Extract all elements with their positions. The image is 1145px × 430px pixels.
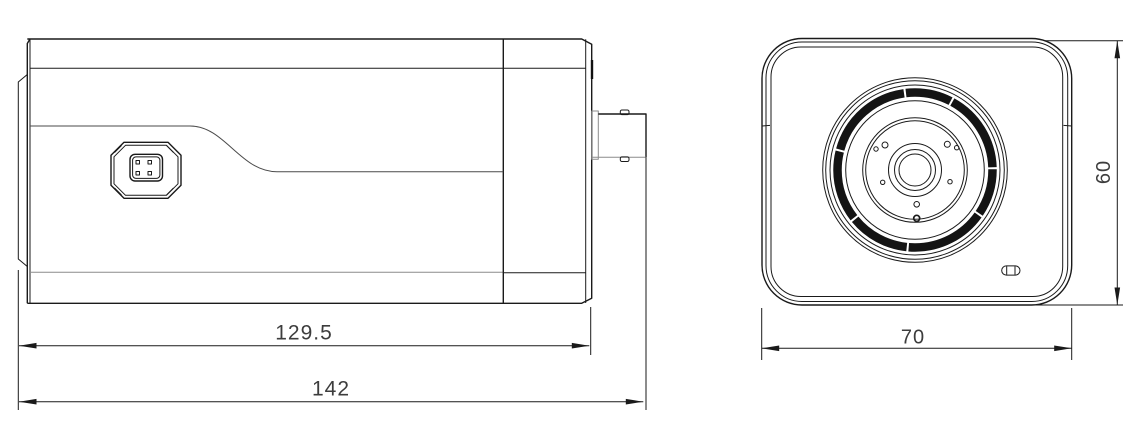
dim-body-length-label: 129.5 — [275, 322, 333, 345]
lens-ring-2 — [895, 150, 936, 191]
bnc-body — [598, 114, 646, 157]
dim-total-length: 142 — [19, 378, 643, 405]
ring-outer-1 — [823, 78, 1008, 263]
power-connector-inner-outline — [114, 145, 178, 195]
gasket-inner-edge — [846, 101, 985, 240]
front-outline-outer — [762, 39, 1072, 306]
front-view — [762, 39, 1072, 306]
gasket-outer-edge — [830, 85, 1000, 255]
socket-outer — [130, 154, 163, 181]
mount-plate-inner — [866, 121, 965, 220]
dim-height: 60 — [1093, 41, 1120, 305]
side-dimensions: 129.5 142 — [18, 157, 646, 410]
drawing-sheet: 129.5 142 — [0, 0, 1145, 430]
ring-outer-2 — [826, 81, 1005, 260]
seam-tick-right — [1064, 125, 1072, 126]
dim-total-length-label: 142 — [312, 378, 350, 401]
side-body-outline — [27, 39, 591, 303]
lens-assembly — [823, 78, 1008, 263]
lens-opening — [899, 154, 931, 186]
dim-body-length: 129.5 — [19, 322, 589, 349]
camera-dimension-drawing: 129.5 142 — [0, 0, 1145, 430]
mount-holes — [874, 141, 959, 221]
gasket-ring — [838, 93, 993, 248]
indicator-slot — [1002, 266, 1020, 275]
lens-ring-1 — [889, 144, 942, 197]
dim-width-label: 70 — [901, 327, 925, 349]
bnc-flange — [592, 111, 599, 159]
side-curve-line — [30, 126, 503, 172]
bnc-connector — [592, 110, 646, 162]
dim-height-label: 60 — [1093, 160, 1115, 184]
power-connector — [111, 142, 181, 198]
seam-tick-left — [762, 125, 770, 126]
dim-width: 70 — [762, 327, 1072, 352]
lens-mount-lip — [18, 75, 27, 267]
power-connector-corner-ticks — [115, 146, 174, 196]
front-dimensions: 70 60 — [762, 41, 1123, 360]
power-connector-outer — [111, 142, 181, 198]
side-view — [18, 39, 646, 303]
socket-pins — [136, 161, 152, 176]
